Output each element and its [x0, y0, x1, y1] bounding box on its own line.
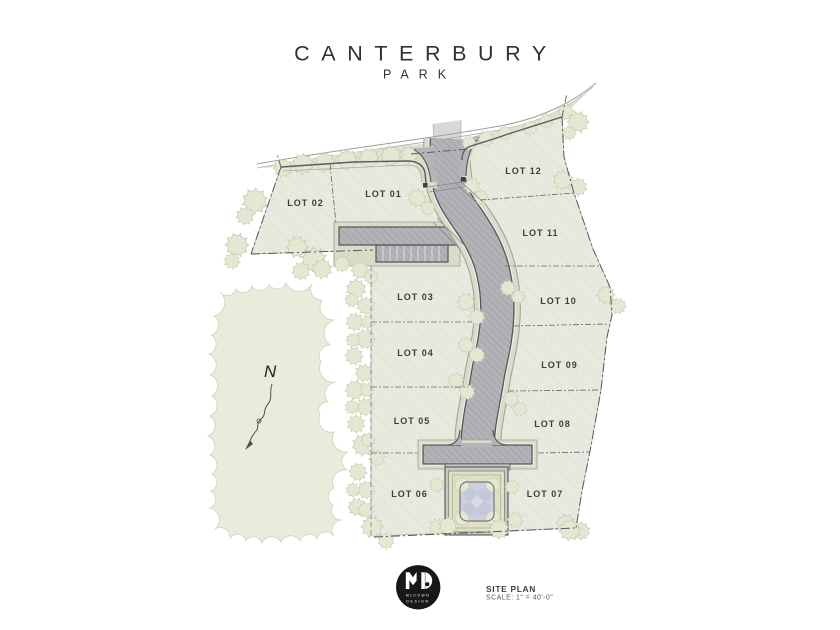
- svg-text:LOT 07: LOT 07: [527, 489, 564, 499]
- svg-text:LOT 03: LOT 03: [397, 292, 434, 302]
- svg-text:SCALE: 1" = 40'-0": SCALE: 1" = 40'-0": [486, 595, 553, 602]
- svg-text:CANTERBURY: CANTERBURY: [294, 42, 558, 66]
- svg-text:SITE PLAN: SITE PLAN: [486, 584, 536, 594]
- svg-text:LOT 04: LOT 04: [397, 348, 434, 358]
- svg-text:N: N: [264, 362, 277, 381]
- svg-text:LOT 09: LOT 09: [541, 360, 578, 370]
- svg-text:LOT 06: LOT 06: [391, 489, 428, 499]
- svg-text:LOT 12: LOT 12: [505, 166, 542, 176]
- svg-text:LOT 10: LOT 10: [540, 296, 577, 306]
- svg-text:PARK: PARK: [383, 68, 456, 82]
- svg-text:McCOWN: McCOWN: [406, 593, 430, 597]
- svg-text:DESIGN: DESIGN: [406, 599, 429, 603]
- svg-text:LOT 08: LOT 08: [534, 419, 571, 429]
- svg-text:LOT 05: LOT 05: [394, 416, 431, 426]
- svg-text:LOT 01: LOT 01: [365, 189, 402, 199]
- svg-text:LOT 11: LOT 11: [522, 228, 558, 238]
- svg-text:LOT 02: LOT 02: [287, 198, 324, 208]
